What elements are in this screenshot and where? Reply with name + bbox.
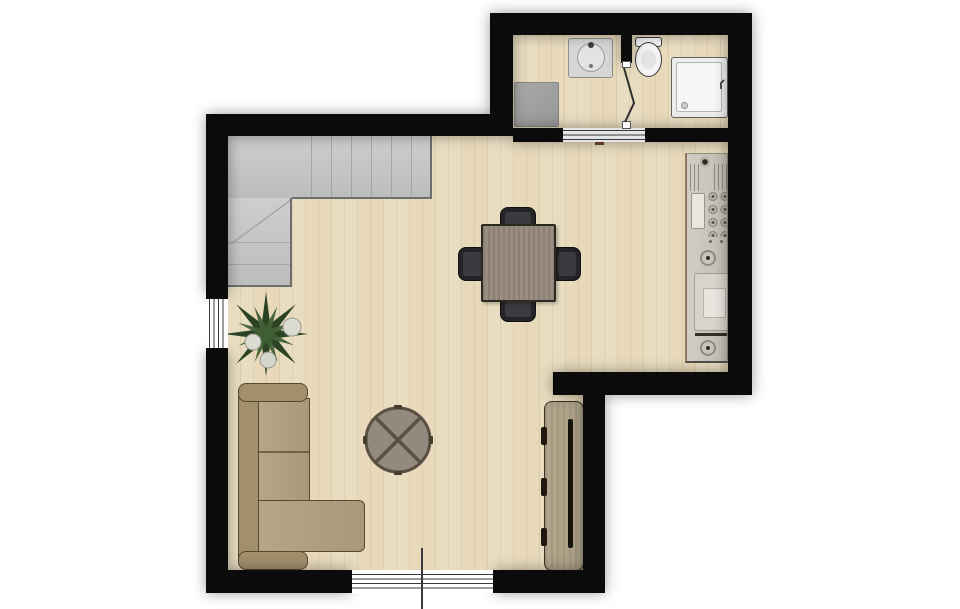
dining-chair-east [553,247,581,281]
board-inset [703,288,726,318]
wall-bathroom-top [490,13,752,35]
tv-line [568,419,573,548]
stair-edge [430,136,432,198]
shower-drain [681,102,688,109]
wall-left-lower [206,352,228,593]
sofa-armrest-bottom [238,551,308,570]
small-knob [720,240,723,243]
stair-treads [292,136,432,198]
sofa-chaise [258,500,365,552]
wall-bathroom-left [490,13,513,136]
table-nub [394,405,402,409]
control-knobs [707,190,730,237]
burner-icon [700,250,716,266]
bathroom-sink [568,38,613,78]
plant-bloom [245,334,261,350]
table-nub [394,471,402,475]
sliding-door-bathroom [563,128,645,142]
dining-table [481,224,556,302]
potted-plant [222,286,308,380]
wall-left-upper [206,114,228,295]
sliding-door-stripes [563,130,645,140]
window-left [206,295,228,352]
sideboard-handle [541,478,547,496]
toilet-bowl-inner [641,50,656,69]
wall-top-main [206,114,513,136]
wall-bottom-right [495,570,605,593]
sideboard-tv-board [544,401,584,571]
sideboard-handle [541,528,547,546]
wall-bottom-left [206,570,350,593]
sink-basin [691,193,705,229]
small-knob [709,240,712,243]
stair-edge [292,197,432,199]
sofa-armrest-top [238,383,308,402]
stair-winder-line [228,198,294,248]
sink-drain [589,64,593,68]
kitchen-counter [685,153,728,363]
sofa-seat-cushions [258,398,310,504]
cutting-board [694,273,728,331]
wall-right [728,13,752,395]
sink-drainer-left [690,164,701,191]
plant-bloom [283,318,301,336]
wall-living-right [583,372,605,593]
shower-faucet-icon [718,79,726,91]
plant-bloom [260,352,276,368]
leader-line [421,548,423,609]
sink-drainer-right [714,164,728,190]
counter-dark-line [695,333,727,336]
washing-machine [514,82,559,127]
round-coffee-table [363,405,433,475]
stair-tread-line [228,264,291,265]
burner-icon [700,340,716,356]
table-nub [429,436,433,444]
toilet-door-leaf [618,60,640,130]
window-glazing [209,299,225,348]
shower-tray [671,57,728,118]
table-nub [363,436,367,444]
door-threshold-mark [595,142,604,145]
sideboard-handle [541,427,547,445]
sink-faucet-icon [588,42,594,48]
floor-plan [0,0,960,609]
sofa-seam [259,451,309,453]
stair-edge [290,198,292,287]
